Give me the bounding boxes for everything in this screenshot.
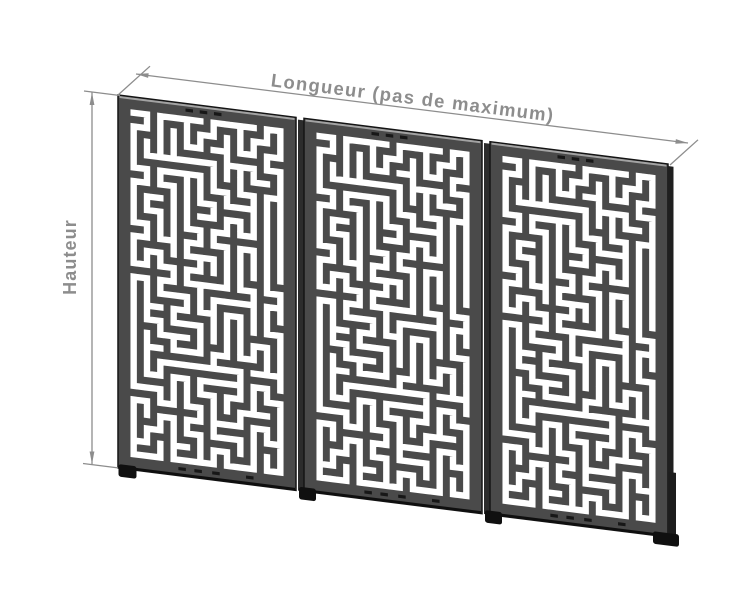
length-dimension-label: Longueur (pas de maximum) (270, 69, 556, 125)
length-arrow-right (675, 139, 688, 144)
height-dimension-label: Hauteur (60, 219, 80, 295)
height-arrow-top (90, 93, 95, 106)
panel-foot (299, 487, 316, 502)
panel-foot (119, 464, 137, 479)
panel-side-edge (298, 120, 304, 492)
screen-panel (484, 141, 668, 537)
height-extension-line-bottom (83, 464, 118, 468)
diagram-canvas: Longueur (pas de maximum) Hauteur (0, 0, 751, 600)
screen-panel (118, 95, 296, 490)
height-arrow-bottom (90, 452, 95, 465)
screen-panel (298, 118, 482, 514)
length-extension-line-left (118, 66, 150, 95)
screen-panel-assembly (118, 95, 679, 547)
length-extension-line-right (670, 140, 698, 165)
height-extension-line-top (84, 91, 120, 96)
panel-dimension-drawing: Longueur (pas de maximum) Hauteur (0, 0, 751, 600)
panel-side-edge (484, 143, 490, 515)
panel-foot (485, 510, 502, 525)
